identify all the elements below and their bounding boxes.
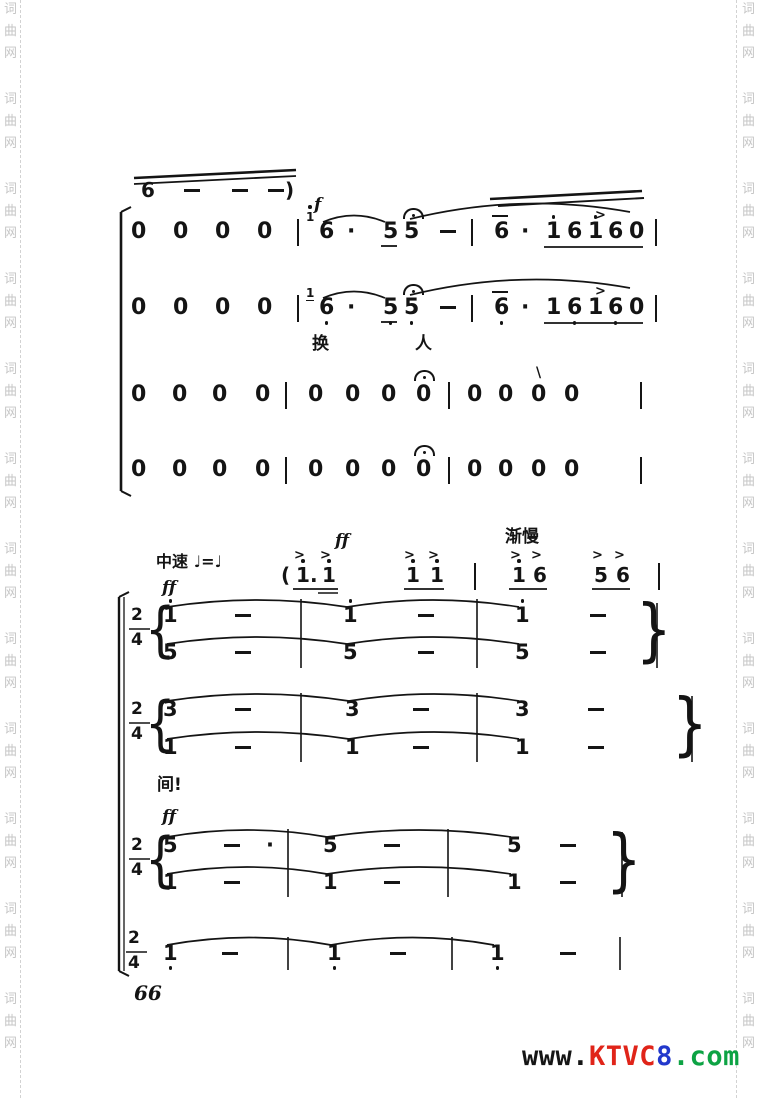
note-1: 1 xyxy=(296,565,310,585)
side-watermark-char: 词 xyxy=(4,633,17,646)
note-6: 6 xyxy=(319,221,334,243)
note-1: 1 xyxy=(345,737,360,758)
barline xyxy=(471,295,473,322)
page-number: 66 xyxy=(134,981,162,1005)
side-watermark-left: 词曲网词曲网词曲网词曲网词曲网词曲网词曲网词曲网词曲网词曲网词曲网词曲网 xyxy=(0,0,26,1098)
time-signature-numerator: 2 xyxy=(131,701,143,718)
rest-zero: 0 xyxy=(416,459,431,481)
side-watermark-char: 曲 xyxy=(742,475,755,488)
note-5: 5 xyxy=(515,642,530,663)
rest-zero: 0 xyxy=(629,221,644,243)
parenthesis: ( xyxy=(281,565,290,585)
rest-zero: 0 xyxy=(531,459,546,481)
dash-extension xyxy=(222,952,238,955)
slur-tie xyxy=(167,830,327,837)
rest-zero: 0 xyxy=(212,459,227,481)
rest-zero: 0 xyxy=(255,384,270,406)
side-watermark-char: 曲 xyxy=(4,565,17,578)
dash-extension xyxy=(184,189,200,192)
slur-tie xyxy=(347,600,519,607)
gliss-line xyxy=(498,198,644,206)
fermata-mark xyxy=(403,208,424,219)
fermata-mark xyxy=(403,284,424,295)
side-watermark-right: 词曲网词曲网词曲网词曲网词曲网词曲网词曲网词曲网词曲网词曲网词曲网词曲网 xyxy=(734,0,760,1098)
dash-extension xyxy=(560,844,576,847)
side-watermark-char: 网 xyxy=(742,587,755,600)
dynamic-ff: ff xyxy=(335,533,349,550)
system-bracket xyxy=(121,491,131,496)
gliss-line xyxy=(134,176,296,184)
slur-tie xyxy=(167,694,349,701)
accent-mark: > xyxy=(510,549,521,562)
dash-extension xyxy=(440,230,456,233)
dash-extension xyxy=(560,881,576,884)
notation-overlay xyxy=(0,0,760,1098)
barline xyxy=(297,295,299,322)
dash-extension xyxy=(235,614,251,617)
slur-tie xyxy=(167,867,327,874)
slur-tie xyxy=(167,938,331,946)
side-watermark-char: 曲 xyxy=(742,655,755,668)
barline xyxy=(640,382,642,409)
note-6: 6 xyxy=(141,180,155,200)
note-6: 6 xyxy=(494,221,509,243)
dash-extension xyxy=(235,746,251,749)
dynamic-ff: ff xyxy=(162,809,176,826)
side-watermark-char: 词 xyxy=(742,3,755,16)
side-watermark-char: 曲 xyxy=(742,205,755,218)
note-6: 6 xyxy=(567,221,582,243)
rest-zero: 0 xyxy=(131,221,146,243)
side-watermark-char: 网 xyxy=(4,947,17,960)
side-watermark-char: 词 xyxy=(742,453,755,466)
ink-speck: · xyxy=(266,835,274,856)
note-5: 5 xyxy=(383,297,398,319)
slur-tie xyxy=(167,637,347,644)
side-watermark-char: 曲 xyxy=(742,925,755,938)
side-watermark-char: 词 xyxy=(742,903,755,916)
side-watermark-char: 网 xyxy=(4,767,17,780)
tempo-marking: 中速 ♩=♩ xyxy=(156,554,222,570)
rest-zero: 0 xyxy=(416,384,431,406)
side-watermark-char: 词 xyxy=(4,363,17,376)
side-watermark-char: 网 xyxy=(4,497,17,510)
parenthesis: ) xyxy=(285,180,294,200)
barline xyxy=(448,457,450,484)
dash-extension xyxy=(413,708,429,711)
rest-zero: 0 xyxy=(531,384,546,406)
note-1: 1 xyxy=(327,943,342,964)
side-watermark-char: 网 xyxy=(742,677,755,690)
time-signature-numerator: 2 xyxy=(131,837,143,854)
rest-zero: 0 xyxy=(131,384,146,406)
dash-extension xyxy=(588,708,604,711)
side-watermark-char: 词 xyxy=(4,273,17,286)
rest-zero: 0 xyxy=(564,459,579,481)
rest-zero: 0 xyxy=(467,459,482,481)
side-watermark-char: 网 xyxy=(742,497,755,510)
side-watermark-char: 曲 xyxy=(742,385,755,398)
grace-note: 1 xyxy=(306,211,314,223)
lyric: 间! xyxy=(157,777,182,794)
slur-tie xyxy=(327,830,511,837)
slur-tie xyxy=(349,694,519,701)
lyric-char: 人 xyxy=(415,336,432,353)
accent-mark: > xyxy=(294,549,305,562)
note-1: 1 xyxy=(546,221,561,243)
rest-zero: 0 xyxy=(131,459,146,481)
dash-extension xyxy=(440,306,456,309)
note-1: 1 xyxy=(406,565,420,585)
time-signature-numerator: 2 xyxy=(128,930,140,947)
dash-extension xyxy=(224,881,240,884)
rest-zero: 0 xyxy=(172,459,187,481)
system-bracket xyxy=(119,592,129,597)
note-5: 5 xyxy=(343,642,358,663)
rest-zero: 0 xyxy=(257,221,272,243)
side-watermark-char: 曲 xyxy=(4,475,17,488)
barline xyxy=(655,295,657,322)
note-6: 6 xyxy=(608,297,623,319)
side-watermark-char: 曲 xyxy=(4,205,17,218)
voice-brace: { xyxy=(145,830,176,890)
watermark-text: .com xyxy=(673,1041,740,1072)
note-1: 1 xyxy=(588,221,603,243)
side-watermark-char: 曲 xyxy=(4,655,17,668)
side-watermark-char: 网 xyxy=(4,407,17,420)
time-signature-denominator: 4 xyxy=(131,632,143,649)
barline xyxy=(285,382,287,409)
ritard-marking: 渐慢 xyxy=(505,529,539,546)
note-5: 5 xyxy=(507,835,522,856)
note-6: 6 xyxy=(608,221,623,243)
side-watermark-char: 词 xyxy=(742,633,755,646)
accent-mark: > xyxy=(595,209,606,222)
barline xyxy=(285,457,287,484)
lyric-char: 换 xyxy=(312,336,329,353)
note-1: 1 xyxy=(322,565,336,585)
side-watermark-char: 词 xyxy=(4,93,17,106)
side-watermark-char: 曲 xyxy=(742,295,755,308)
barline xyxy=(655,219,657,246)
note-1: 1 xyxy=(343,605,358,626)
note-1: 1 xyxy=(430,565,444,585)
side-watermark-char: 词 xyxy=(4,993,17,1006)
augmentation-dot: . xyxy=(310,565,318,585)
barline xyxy=(640,457,642,484)
side-watermark-char: 网 xyxy=(742,767,755,780)
side-watermark-char: 词 xyxy=(4,543,17,556)
rest-zero: 0 xyxy=(345,459,360,481)
dash-extension xyxy=(390,952,406,955)
site-watermark: www.KTVC8.com xyxy=(522,1043,740,1070)
grace-note: 1 xyxy=(306,287,314,301)
side-watermark-char: 曲 xyxy=(742,565,755,578)
voice-brace: } xyxy=(636,597,672,665)
rest-zero: 0 xyxy=(131,297,146,319)
rest-zero: 0 xyxy=(467,384,482,406)
note-1: 1 xyxy=(512,565,526,585)
dash-extension xyxy=(224,844,240,847)
rest-zero: 0 xyxy=(257,297,272,319)
barline xyxy=(297,219,299,246)
side-watermark-char: 词 xyxy=(742,723,755,736)
side-watermark-char: 网 xyxy=(4,587,17,600)
note-1: 1 xyxy=(515,605,530,626)
time-signature-denominator: 4 xyxy=(131,862,143,879)
rest-zero: 0 xyxy=(173,221,188,243)
side-watermark-char: 网 xyxy=(742,857,755,870)
watermark-text: www. xyxy=(522,1041,589,1072)
side-watermark-char: 网 xyxy=(4,1037,17,1050)
rest-zero: 0 xyxy=(172,384,187,406)
accent-mark: > xyxy=(531,549,542,562)
rest-zero: 0 xyxy=(215,221,230,243)
augmentation-dot: · xyxy=(347,297,355,319)
side-watermark-char: 网 xyxy=(742,947,755,960)
time-signature-numerator: 2 xyxy=(131,607,143,624)
note-1: 1 xyxy=(323,872,338,893)
rest-zero: 0 xyxy=(215,297,230,319)
slur-tie xyxy=(167,732,349,739)
rest-zero: 0 xyxy=(255,459,270,481)
side-watermark-char: 词 xyxy=(4,453,17,466)
side-watermark-char: 曲 xyxy=(742,835,755,848)
side-watermark-char: 网 xyxy=(742,407,755,420)
note-6: 6 xyxy=(494,297,509,319)
voice-brace: { xyxy=(145,694,176,754)
side-watermark-char: 曲 xyxy=(4,115,17,128)
barline xyxy=(471,219,473,246)
barline xyxy=(474,563,476,590)
side-watermark-char: 词 xyxy=(742,183,755,196)
watermark-text: 8 xyxy=(656,1041,673,1072)
side-watermark-char: 曲 xyxy=(4,385,17,398)
dash-extension xyxy=(418,614,434,617)
note-5: 5 xyxy=(383,221,398,243)
barline xyxy=(658,563,660,590)
rest-zero: 0 xyxy=(498,459,513,481)
side-watermark-char: 网 xyxy=(742,137,755,150)
rest-zero: 0 xyxy=(381,459,396,481)
note-6: 6 xyxy=(319,297,334,319)
rest-zero: 0 xyxy=(173,297,188,319)
side-watermark-char: 网 xyxy=(4,677,17,690)
dash-extension xyxy=(268,189,284,192)
dash-extension xyxy=(590,651,606,654)
rest-zero: 0 xyxy=(345,384,360,406)
rest-zero: 0 xyxy=(564,384,579,406)
gliss-line xyxy=(490,191,642,199)
rest-zero: 0 xyxy=(498,384,513,406)
side-watermark-char: 词 xyxy=(742,93,755,106)
accent-mark: > xyxy=(428,549,439,562)
sheet-music-page: 词曲网词曲网词曲网词曲网词曲网词曲网词曲网词曲网词曲网词曲网词曲网词曲网 词曲网… xyxy=(0,0,760,1098)
breath-mark: \ xyxy=(536,366,541,380)
side-watermark-char: 词 xyxy=(742,993,755,1006)
accent-mark: > xyxy=(404,549,415,562)
dash-extension xyxy=(235,708,251,711)
rest-zero: 0 xyxy=(381,384,396,406)
side-watermark-char: 曲 xyxy=(4,925,17,938)
slur-tie xyxy=(349,732,519,739)
side-watermark-char: 网 xyxy=(742,317,755,330)
side-watermark-char: 网 xyxy=(4,47,17,60)
dynamic-f: f xyxy=(314,197,321,214)
side-watermark-char: 网 xyxy=(742,47,755,60)
fermata-mark xyxy=(414,445,435,456)
dash-extension xyxy=(384,881,400,884)
side-watermark-char: 曲 xyxy=(742,115,755,128)
note-5: 5 xyxy=(594,565,608,585)
accent-mark: > xyxy=(595,285,606,298)
accent-mark: > xyxy=(592,549,603,562)
note-6: 6 xyxy=(616,565,630,585)
side-watermark-char: 词 xyxy=(4,903,17,916)
side-watermark-char: 词 xyxy=(4,3,17,16)
side-watermark-char: 词 xyxy=(742,813,755,826)
side-watermark-char: 词 xyxy=(742,543,755,556)
rest-zero: 0 xyxy=(212,384,227,406)
system-bracket xyxy=(121,207,131,212)
note-1: 1 xyxy=(546,297,561,319)
note-5: 5 xyxy=(404,297,419,319)
dash-extension xyxy=(418,651,434,654)
side-watermark-char: 网 xyxy=(4,857,17,870)
note-1: 1 xyxy=(163,943,178,964)
side-watermark-char: 词 xyxy=(4,183,17,196)
dash-extension xyxy=(384,844,400,847)
barline xyxy=(448,382,450,409)
note-6: 6 xyxy=(533,565,547,585)
watermark-text: KTVC xyxy=(589,1041,656,1072)
side-watermark-char: 网 xyxy=(4,317,17,330)
voice-brace: } xyxy=(606,827,642,895)
rest-zero: 0 xyxy=(308,459,323,481)
slur-tie xyxy=(167,600,347,607)
dash-extension xyxy=(232,189,248,192)
side-watermark-char: 网 xyxy=(742,227,755,240)
note-3: 3 xyxy=(515,699,530,720)
side-watermark-char: 曲 xyxy=(4,745,17,758)
side-watermark-char: 网 xyxy=(4,137,17,150)
time-signature-denominator: 4 xyxy=(128,955,140,972)
augmentation-dot: · xyxy=(347,221,355,243)
voice-brace: { xyxy=(145,600,176,660)
note-1: 1 xyxy=(507,872,522,893)
side-watermark-char: 词 xyxy=(4,813,17,826)
gliss-line xyxy=(134,170,296,178)
side-watermark-char: 曲 xyxy=(4,295,17,308)
dash-extension xyxy=(588,746,604,749)
note-1: 1 xyxy=(515,737,530,758)
time-signature-denominator: 4 xyxy=(131,726,143,743)
voice-brace: } xyxy=(672,691,708,759)
side-watermark-char: 曲 xyxy=(4,1015,17,1028)
side-watermark-char: 曲 xyxy=(4,835,17,848)
side-watermark-char: 曲 xyxy=(742,25,755,38)
slur-tie xyxy=(347,637,519,644)
note-1: 1 xyxy=(588,297,603,319)
augmentation-dot: · xyxy=(521,221,529,243)
side-watermark-char: 词 xyxy=(742,363,755,376)
augmentation-dot: · xyxy=(521,297,529,319)
side-watermark-char: 网 xyxy=(4,227,17,240)
side-watermark-char: 词 xyxy=(4,723,17,736)
note-5: 5 xyxy=(404,221,419,243)
fermata-mark xyxy=(414,370,435,381)
side-watermark-char: 网 xyxy=(742,1037,755,1050)
side-watermark-char: 曲 xyxy=(742,745,755,758)
accent-mark: > xyxy=(614,549,625,562)
note-3: 3 xyxy=(345,699,360,720)
note-5: 5 xyxy=(323,835,338,856)
rest-zero: 0 xyxy=(308,384,323,406)
note-1: 1 xyxy=(490,943,505,964)
dash-extension xyxy=(413,746,429,749)
dash-extension xyxy=(560,952,576,955)
rest-zero: 0 xyxy=(629,297,644,319)
slur-tie xyxy=(331,938,494,946)
note-6: 6 xyxy=(567,297,582,319)
dash-extension xyxy=(235,651,251,654)
accent-mark: > xyxy=(320,549,331,562)
side-watermark-char: 词 xyxy=(742,273,755,286)
side-watermark-char: 曲 xyxy=(4,25,17,38)
slur-tie xyxy=(327,867,511,874)
side-watermark-char: 曲 xyxy=(742,1015,755,1028)
dash-extension xyxy=(590,614,606,617)
